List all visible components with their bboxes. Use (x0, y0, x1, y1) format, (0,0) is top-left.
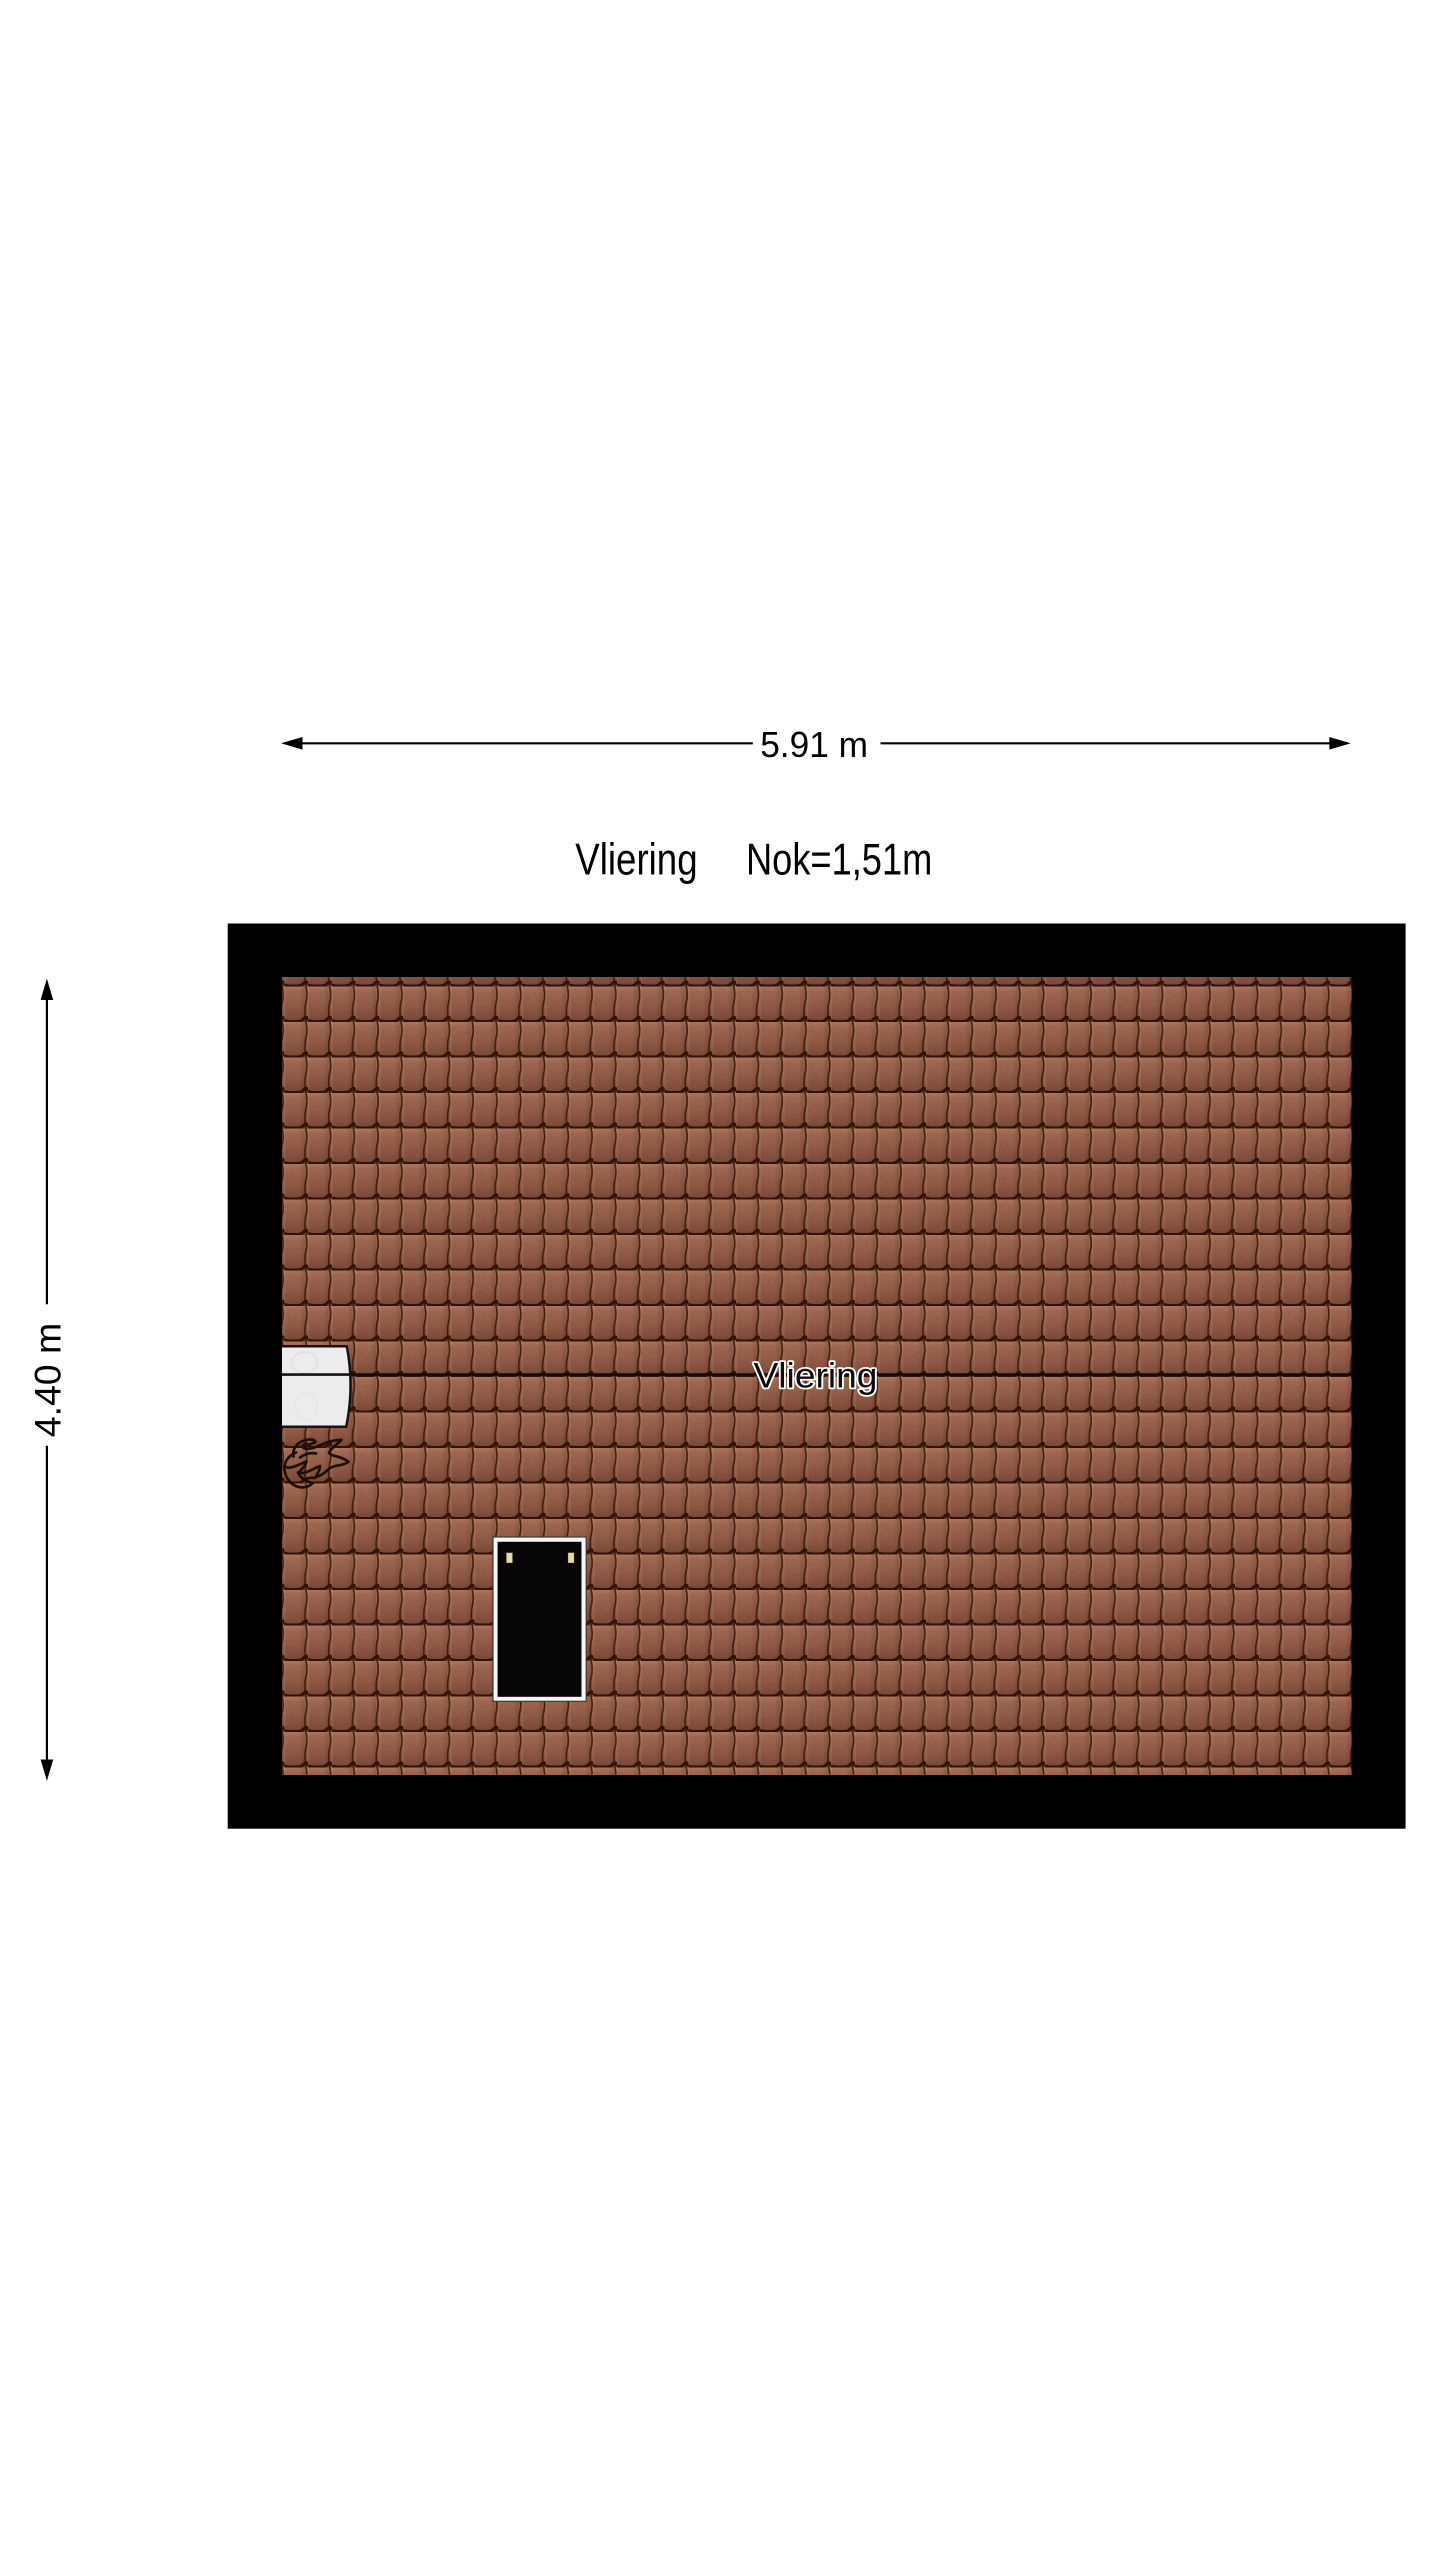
svg-text:5.91 m: 5.91 m (760, 724, 868, 765)
svg-text:4.40 m: 4.40 m (28, 1323, 69, 1438)
svg-text:Vliering: Vliering (575, 836, 697, 885)
svg-text:Vliering: Vliering (754, 1356, 878, 1396)
svg-text:Nok=1,51m: Nok=1,51m (746, 836, 932, 885)
